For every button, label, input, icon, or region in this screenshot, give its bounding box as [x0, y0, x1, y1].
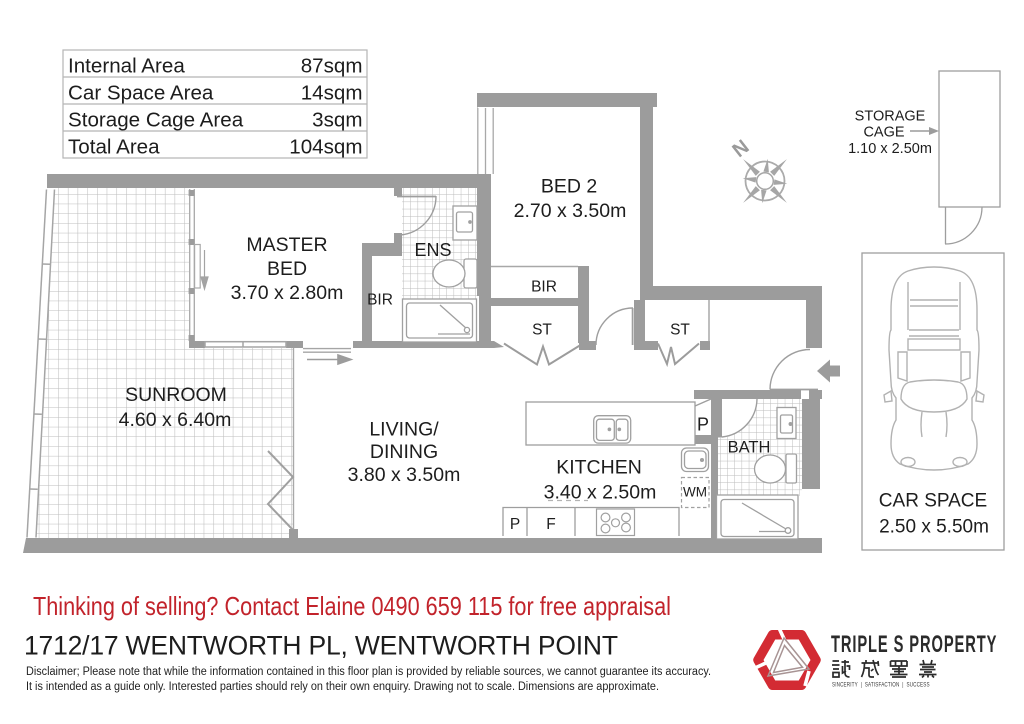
- svg-text:P: P: [510, 516, 520, 533]
- svg-text:SUNROOM: SUNROOM: [125, 384, 227, 406]
- svg-text:TRIPLE S PROPERTY: TRIPLE S PROPERTY: [831, 631, 997, 658]
- svg-text:3sqm: 3sqm: [312, 109, 362, 132]
- svg-text:14sqm: 14sqm: [301, 82, 363, 105]
- svg-text:Total Area: Total Area: [68, 136, 160, 159]
- svg-text:MASTER: MASTER: [246, 234, 327, 256]
- svg-text:3.40 x 2.50m: 3.40 x 2.50m: [544, 482, 657, 504]
- svg-text:Internal Area: Internal Area: [68, 55, 185, 78]
- svg-text:4.60 x 6.40m: 4.60 x 6.40m: [119, 409, 232, 431]
- svg-text:Storage Cage Area: Storage Cage Area: [68, 109, 244, 132]
- svg-text:BATH: BATH: [728, 439, 771, 457]
- svg-text:ST: ST: [532, 322, 552, 339]
- svg-text:104sqm: 104sqm: [289, 136, 362, 159]
- svg-text:3.80 x 3.50m: 3.80 x 3.50m: [348, 464, 461, 486]
- svg-text:BED: BED: [267, 258, 307, 280]
- svg-text:SINCERITY | SATISFACTION |: SINCERITY | SATISFACTION | SUCCESS: [832, 682, 930, 689]
- svg-text:Thinking of selling? Contact E: Thinking of selling? Contact Elaine 0490…: [33, 593, 671, 621]
- svg-text:P: P: [697, 415, 709, 435]
- svg-text:KITCHEN: KITCHEN: [556, 457, 642, 479]
- svg-text:DINING: DINING: [370, 441, 438, 463]
- svg-text:STORAGE: STORAGE: [855, 109, 926, 125]
- svg-text:2.70 x 3.50m: 2.70 x 3.50m: [514, 200, 627, 222]
- svg-text:CAGE: CAGE: [863, 125, 904, 141]
- svg-text:It is intended as a guide only: It is intended as a guide only. Interest…: [26, 680, 659, 693]
- svg-text:WM: WM: [683, 485, 707, 500]
- svg-text:BED 2: BED 2: [541, 176, 597, 198]
- svg-text:N: N: [729, 136, 754, 162]
- svg-text:LIVING/: LIVING/: [369, 419, 439, 441]
- svg-text:F: F: [546, 516, 555, 533]
- svg-text:Disclaimer; Please note that w: Disclaimer; Please note that while the i…: [26, 665, 711, 678]
- svg-text:87sqm: 87sqm: [301, 55, 363, 78]
- svg-text:ST: ST: [670, 322, 690, 339]
- svg-text:3.70 x 2.80m: 3.70 x 2.80m: [231, 282, 344, 304]
- svg-text:1712/17 WENTWORTH PL, WENTWORT: 1712/17 WENTWORTH PL, WENTWORTH POINT: [24, 631, 618, 661]
- svg-text:Car Space Area: Car Space Area: [68, 82, 214, 105]
- svg-text:BIR: BIR: [367, 292, 393, 309]
- svg-text:ENS: ENS: [414, 240, 451, 260]
- svg-text:BIR: BIR: [531, 279, 557, 296]
- svg-text:1.10 x 2.50m: 1.10 x 2.50m: [848, 141, 932, 157]
- svg-text:CAR SPACE: CAR SPACE: [879, 491, 987, 512]
- svg-text:2.50 x 5.50m: 2.50 x 5.50m: [879, 517, 989, 538]
